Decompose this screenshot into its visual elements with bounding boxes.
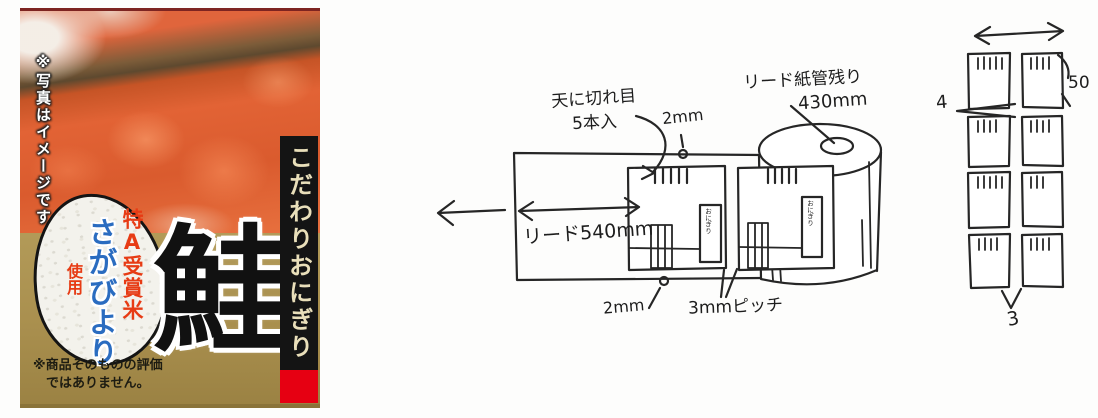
layout-grid-sketch: 50 4 3 xyxy=(930,10,1098,370)
banner-red-block xyxy=(280,370,318,403)
down-arrow xyxy=(1002,289,1021,308)
bottom-gap-label: 2mm xyxy=(602,295,645,318)
mini-package-2 xyxy=(738,166,834,270)
rice-usage-text: 使用 xyxy=(61,263,85,295)
mini-package-label-1: おにぎり xyxy=(704,208,711,234)
grid-cells xyxy=(968,53,1063,288)
product-name-kanji: 鮭 xyxy=(153,223,293,359)
onigiri-package-label: ※写真はイメージです 特A受賞米 さがびより 使用 鮭 こだわりおにぎり ※商品… xyxy=(20,8,320,408)
salmon-photo xyxy=(20,11,320,233)
disclaimer-line2: ではありません。 xyxy=(33,375,163,393)
height-label: 50 xyxy=(1068,73,1090,93)
photo-disclaimer-note: ※写真はイメージです xyxy=(33,53,54,226)
vertical-banner: こだわりおにぎり xyxy=(280,136,318,403)
width-arrow xyxy=(975,23,1063,44)
roll-core-hole xyxy=(821,138,853,154)
pitch-label: 3mmピッチ xyxy=(688,290,784,318)
film-roll-sketch: 天に切れ目 5本入 2mm リード紙管残り 430mm リード540mm 2mm… xyxy=(425,50,940,350)
disclaimer-line1: ※商品そのものの評価 xyxy=(33,357,163,375)
rice-brand-text: さがびより xyxy=(80,217,122,367)
bottom-gap-leader xyxy=(649,277,668,308)
cut-note-line2: 5本入 xyxy=(571,107,617,134)
banner-text: こだわりおにぎり xyxy=(282,145,317,361)
feed-direction-arrow xyxy=(438,201,505,225)
product-disclaimer: ※商品そのものの評価 ではありません。 xyxy=(33,357,163,393)
banner-black-strip: こだわりおにぎり xyxy=(280,136,318,370)
gap-label: 4 xyxy=(935,92,948,114)
screenshot-root: ※写真はイメージです 特A受賞米 さがびより 使用 鮭 こだわりおにぎり ※商品… xyxy=(0,0,1098,418)
mini-package-label-2: おにぎり xyxy=(806,200,813,226)
